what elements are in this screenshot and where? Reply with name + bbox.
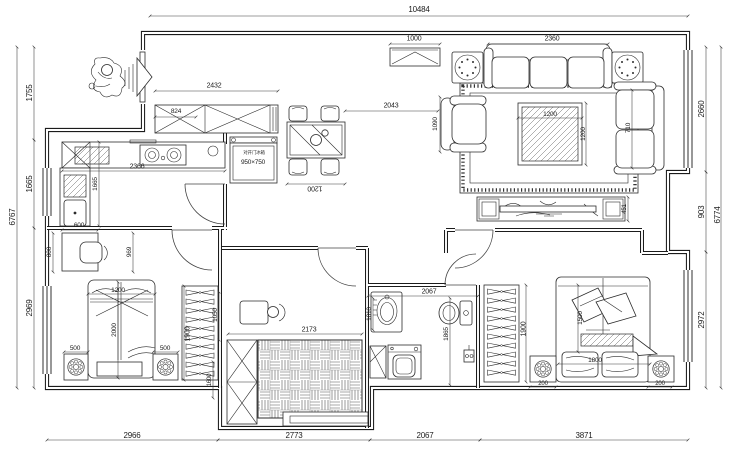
stove-icon (140, 145, 186, 165)
study-door-arc (318, 248, 356, 286)
bed-runner (581, 334, 633, 346)
bed-master (556, 277, 657, 382)
kitchen-sink (64, 175, 86, 226)
bath-door-arc (445, 254, 476, 285)
side-table-right (612, 52, 643, 83)
wardrobe-master (484, 285, 519, 382)
tv-cabinet (477, 197, 625, 221)
shoe-cabinet (390, 48, 440, 66)
kitchen-door-arc (185, 184, 225, 224)
desk-secondary (62, 233, 107, 271)
nightstand-secondary-right (153, 354, 178, 380)
person-figure (89, 58, 125, 97)
wardrobe-secondary (182, 286, 218, 380)
hall-cabinet (155, 105, 278, 133)
sofa (484, 44, 612, 88)
cutting-board (75, 147, 109, 164)
tatami-floor (258, 340, 362, 418)
floor-plan: 10484 1755 1665 2969 6767 2660 903 2972 … (0, 0, 740, 450)
dining-set (287, 106, 345, 175)
side-table-left (452, 52, 483, 83)
shower-fixture (464, 345, 474, 362)
bedroom2-door-arc (172, 230, 212, 270)
study-wardrobe (227, 340, 257, 424)
bed-secondary (88, 280, 155, 378)
tv-icon (500, 206, 596, 212)
coffee-table (518, 103, 582, 165)
nightstand-master-right (648, 356, 674, 382)
armchair (441, 96, 486, 152)
washing-machine (388, 345, 421, 379)
bay-step (283, 412, 368, 426)
study-desk (240, 301, 285, 324)
bath-shelf (370, 346, 386, 378)
toilet (439, 301, 472, 325)
master-door-arc (455, 230, 493, 268)
fridge (230, 137, 277, 183)
entry-arrow (125, 58, 152, 96)
bath-sink (371, 292, 402, 332)
floor-plan-canvas (0, 0, 740, 450)
loveseat (614, 82, 664, 174)
kitchen-counter (60, 140, 225, 226)
nightstand-secondary-left (64, 354, 88, 380)
nightstand-master-left (530, 356, 556, 382)
